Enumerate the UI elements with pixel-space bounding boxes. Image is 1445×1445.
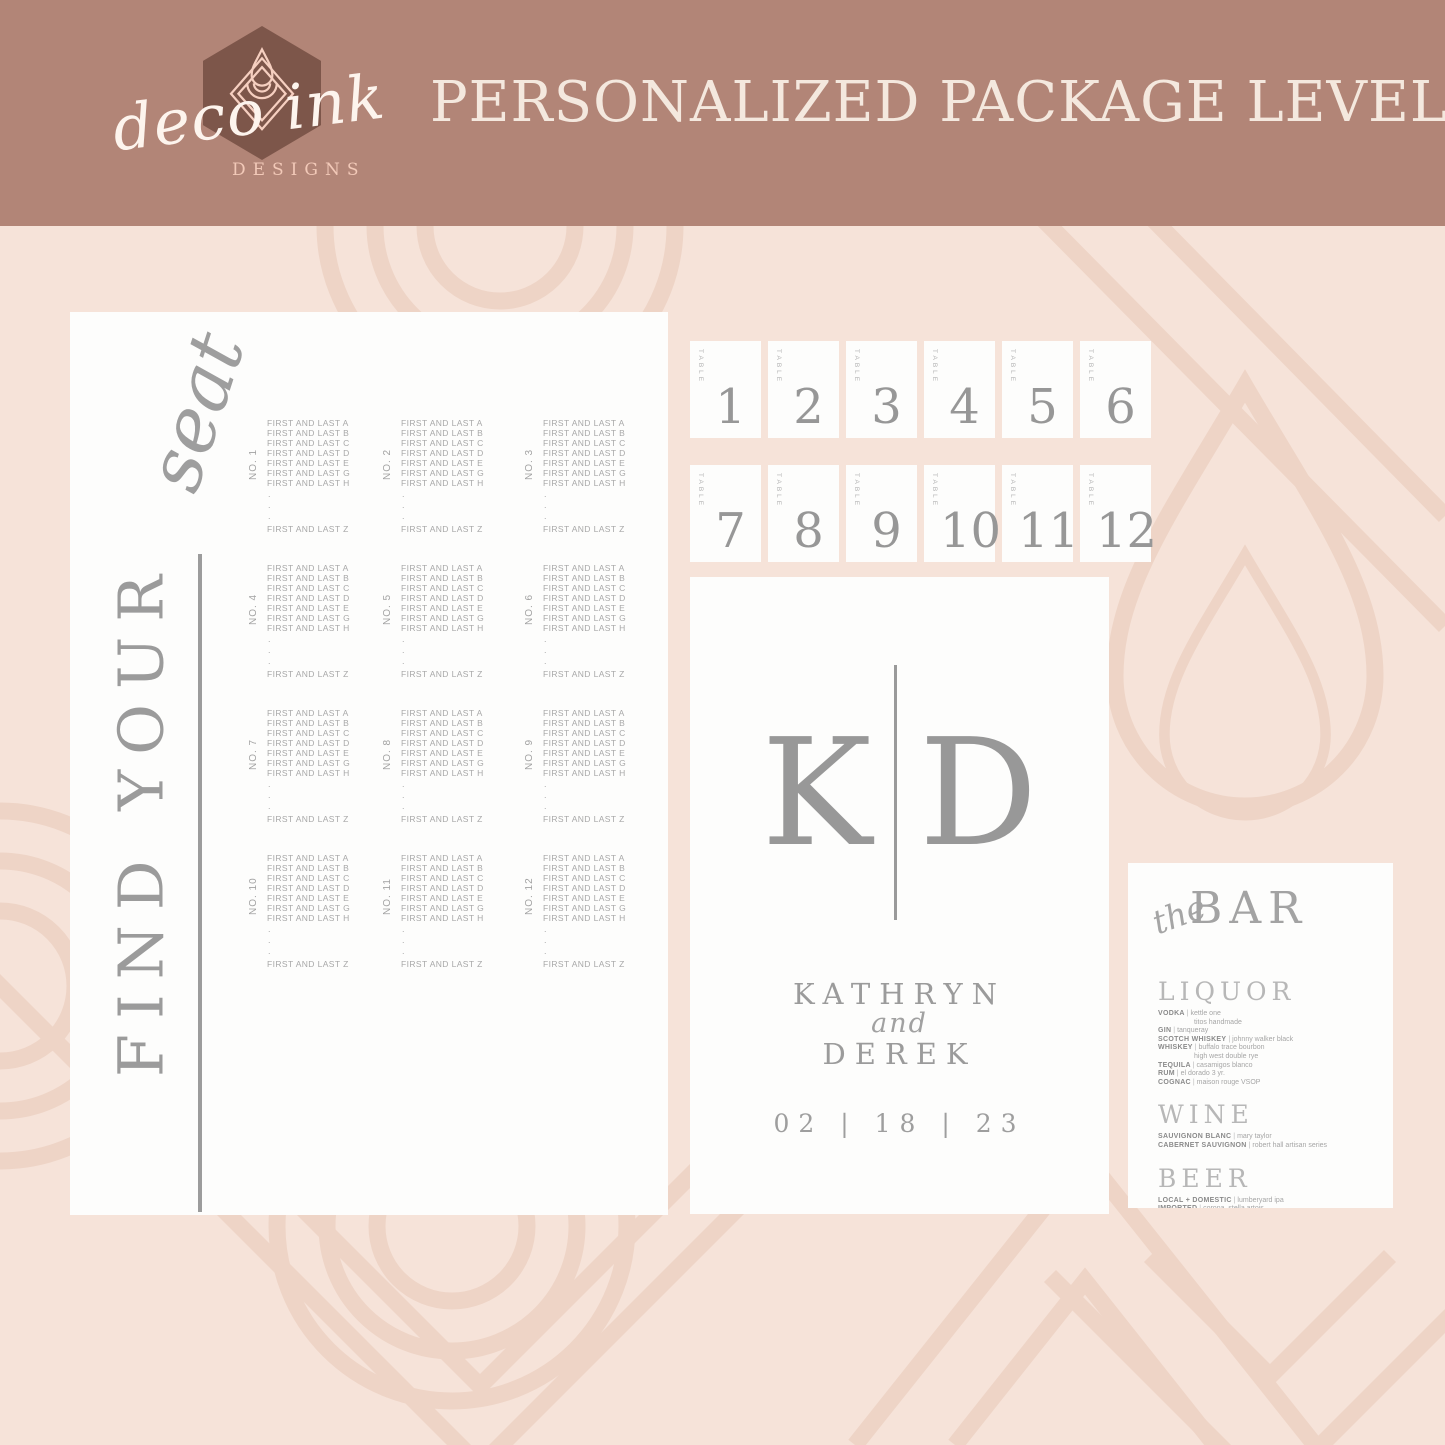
table-card: TABLE7: [690, 465, 761, 562]
page: { "header": { "logo": { "script": "deco …: [0, 0, 1445, 1445]
guest-name: FIRST AND LAST A: [401, 418, 484, 428]
monogram-divider-line: [894, 665, 897, 920]
table-card-label: TABLE: [697, 473, 704, 508]
guest-name: FIRST AND LAST G: [543, 613, 626, 623]
bar-item-label: IMPORTED: [1158, 1205, 1197, 1208]
ellipsis-dot: .: [401, 925, 484, 934]
guest-name: FIRST AND LAST E: [267, 603, 350, 613]
bar-item-value-cont: high west double rye: [1158, 1053, 1379, 1062]
seating-grid: NO. 1FIRST AND LAST AFIRST AND LAST BFIR…: [248, 418, 654, 969]
guest-name: FIRST AND LAST H: [543, 623, 626, 633]
table-group: NO. 6FIRST AND LAST AFIRST AND LAST BFIR…: [524, 563, 654, 679]
and-script-word: and: [690, 1011, 1109, 1037]
table-card: TABLE3: [846, 341, 917, 438]
table-card-number: 6: [1096, 383, 1145, 431]
guest-name: FIRST AND LAST H: [543, 768, 626, 778]
ellipsis-dot: .: [267, 791, 350, 800]
guest-name-last: FIRST AND LAST Z: [543, 524, 626, 534]
table-card-number: 2: [784, 383, 833, 431]
bar-item-label: WHISKEY: [1158, 1044, 1193, 1051]
ellipsis-dot: .: [543, 925, 626, 934]
ellipsis-dot: .: [543, 936, 626, 945]
guest-name: FIRST AND LAST E: [267, 748, 350, 758]
table-card-label: TABLE: [1087, 473, 1094, 508]
guest-name: FIRST AND LAST B: [401, 428, 484, 438]
table-card-number: 3: [862, 383, 911, 431]
table-card-label: TABLE: [1087, 349, 1094, 384]
table-card-number: 5: [1018, 383, 1067, 431]
bar-item-label: COGNAC: [1158, 1079, 1191, 1086]
guest-name: FIRST AND LAST H: [267, 913, 350, 923]
table-card-label: TABLE: [931, 473, 938, 508]
guest-name: FIRST AND LAST G: [543, 758, 626, 768]
guest-name: FIRST AND LAST G: [401, 613, 484, 623]
table-card-label: TABLE: [775, 349, 782, 384]
ellipsis-dot: .: [267, 501, 350, 510]
ellipsis-dot: .: [543, 635, 626, 644]
table-card-label: TABLE: [853, 473, 860, 508]
ellipsis-dot: .: [543, 512, 626, 521]
guest-name: FIRST AND LAST C: [401, 873, 484, 883]
ellipsis-dot: .: [267, 635, 350, 644]
guest-name-last: FIRST AND LAST Z: [543, 669, 626, 679]
guest-name: FIRST AND LAST D: [543, 593, 626, 603]
guest-list: FIRST AND LAST AFIRST AND LAST BFIRST AN…: [543, 418, 626, 534]
ellipsis-dot: .: [543, 501, 626, 510]
guest-name: FIRST AND LAST C: [543, 873, 626, 883]
guest-name-last: FIRST AND LAST Z: [267, 524, 350, 534]
table-card: TABLE11: [1002, 465, 1073, 562]
table-card: TABLE4: [924, 341, 995, 438]
guest-name: FIRST AND LAST G: [543, 903, 626, 913]
guest-name: FIRST AND LAST G: [401, 468, 484, 478]
guest-name: FIRST AND LAST A: [267, 853, 350, 863]
bar-item: VODKA | kettle onetitos handmade: [1158, 1010, 1379, 1027]
guest-name: FIRST AND LAST E: [401, 748, 484, 758]
table-group: NO. 7FIRST AND LAST AFIRST AND LAST BFIR…: [248, 708, 382, 824]
guest-list: FIRST AND LAST AFIRST AND LAST BFIRST AN…: [543, 563, 626, 679]
bar-item: IMPORTED | corona, stella artois: [1158, 1205, 1379, 1208]
table-group: NO. 11FIRST AND LAST AFIRST AND LAST BFI…: [382, 853, 524, 969]
guest-name-last: FIRST AND LAST Z: [401, 524, 484, 534]
guest-name-last: FIRST AND LAST Z: [401, 814, 484, 824]
guest-name-last: FIRST AND LAST Z: [543, 814, 626, 824]
guest-name: FIRST AND LAST C: [401, 438, 484, 448]
ellipsis-dot: .: [543, 791, 626, 800]
guest-name: FIRST AND LAST H: [401, 913, 484, 923]
table-group: NO. 5FIRST AND LAST AFIRST AND LAST BFIR…: [382, 563, 524, 679]
ellipsis-dot: .: [267, 646, 350, 655]
bar-item-label: RUM: [1158, 1070, 1175, 1077]
monogram: K D: [690, 665, 1109, 920]
guest-name: FIRST AND LAST D: [543, 448, 626, 458]
bar-item-label: VODKA: [1158, 1010, 1185, 1017]
table-number-label: NO. 9: [524, 708, 537, 770]
ellipsis-dot: .: [267, 802, 350, 811]
bar-section-title: WINE: [1158, 1100, 1379, 1129]
guest-name: FIRST AND LAST D: [267, 593, 350, 603]
table-number-label: NO. 6: [524, 563, 537, 625]
bar-item-value: johnny walker black: [1232, 1036, 1293, 1043]
guest-name: FIRST AND LAST D: [401, 883, 484, 893]
table-card-number: 11: [1018, 507, 1067, 555]
guest-name: FIRST AND LAST B: [401, 573, 484, 583]
ellipsis-dot: .: [543, 646, 626, 655]
monogram-letter-d: D: [919, 719, 1038, 867]
bar-item-label: GIN: [1158, 1027, 1171, 1034]
guest-name-last: FIRST AND LAST Z: [267, 814, 350, 824]
table-group: NO. 8FIRST AND LAST AFIRST AND LAST BFIR…: [382, 708, 524, 824]
guest-name: FIRST AND LAST C: [401, 728, 484, 738]
guest-list: FIRST AND LAST AFIRST AND LAST BFIRST AN…: [401, 853, 484, 969]
guest-name-last: FIRST AND LAST Z: [543, 959, 626, 969]
guest-name: FIRST AND LAST A: [543, 418, 626, 428]
guest-list: FIRST AND LAST AFIRST AND LAST BFIRST AN…: [401, 708, 484, 824]
guest-name: FIRST AND LAST G: [267, 758, 350, 768]
bar-item: LOCAL + DOMESTIC | lumberyard ipa: [1158, 1197, 1379, 1206]
table-card-label: TABLE: [931, 349, 938, 384]
guest-name: FIRST AND LAST D: [267, 738, 350, 748]
ellipsis-dot: .: [543, 780, 626, 789]
table-card-label: TABLE: [775, 473, 782, 508]
couple-names: KATHRYN and DEREK: [690, 977, 1109, 1071]
guest-name: FIRST AND LAST G: [401, 758, 484, 768]
guest-name: FIRST AND LAST E: [401, 603, 484, 613]
ellipsis-dot: .: [267, 947, 350, 956]
guest-name: FIRST AND LAST C: [543, 438, 626, 448]
bar-item-label: TEQUILA: [1158, 1062, 1191, 1069]
ellipsis-dot: .: [401, 512, 484, 521]
ellipsis-dot: .: [401, 635, 484, 644]
bar-item: COGNAC | maison rouge VSOP: [1158, 1079, 1379, 1088]
guest-name: FIRST AND LAST B: [543, 428, 626, 438]
ellipsis-dot: .: [401, 780, 484, 789]
table-group: NO. 9FIRST AND LAST AFIRST AND LAST BFIR…: [524, 708, 654, 824]
bar-item-value: el dorado 3 yr.: [1181, 1070, 1225, 1077]
guest-name: FIRST AND LAST D: [267, 883, 350, 893]
table-card: TABLE5: [1002, 341, 1073, 438]
ellipsis-dot: .: [267, 936, 350, 945]
page-title: PERSONALIZED PACKAGE LEVEL II: [430, 70, 1431, 135]
guest-name: FIRST AND LAST E: [401, 893, 484, 903]
ellipsis-dot: .: [401, 501, 484, 510]
guest-name: FIRST AND LAST B: [543, 718, 626, 728]
table-group: NO. 1FIRST AND LAST AFIRST AND LAST BFIR…: [248, 418, 382, 534]
guest-name-last: FIRST AND LAST Z: [267, 669, 350, 679]
guest-name: FIRST AND LAST G: [543, 468, 626, 478]
guest-name: FIRST AND LAST A: [543, 853, 626, 863]
table-number-label: NO. 12: [524, 853, 537, 915]
bar-sections: LIQUORVODKA | kettle onetitos handmadeGI…: [1158, 977, 1379, 1208]
table-number-label: NO. 7: [248, 708, 261, 770]
vertical-divider: [198, 554, 202, 1212]
welcome-sign: K D KATHRYN and DEREK 02 | 18 | 23: [690, 577, 1109, 1214]
guest-name: FIRST AND LAST C: [267, 438, 350, 448]
bar-item: CABERNET SAUVIGNON | robert hall artisan…: [1158, 1142, 1379, 1151]
guest-list: FIRST AND LAST AFIRST AND LAST BFIRST AN…: [401, 563, 484, 679]
table-number-label: NO. 3: [524, 418, 537, 480]
guest-name-last: FIRST AND LAST Z: [401, 959, 484, 969]
table-card-number: 8: [784, 507, 833, 555]
guest-list: FIRST AND LAST AFIRST AND LAST BFIRST AN…: [267, 853, 350, 969]
ellipsis-dot: .: [267, 512, 350, 521]
guest-name: FIRST AND LAST G: [267, 613, 350, 623]
guest-list: FIRST AND LAST AFIRST AND LAST BFIRST AN…: [267, 708, 350, 824]
table-number-label: NO. 1: [248, 418, 261, 480]
bar-item-value: kettle one: [1191, 1010, 1221, 1017]
ellipsis-dot: .: [401, 791, 484, 800]
bar-item-label: SCOTCH WHISKEY: [1158, 1036, 1226, 1043]
ellipsis-dot: .: [267, 490, 350, 499]
table-card: TABLE10: [924, 465, 995, 562]
table-card: TABLE2: [768, 341, 839, 438]
guest-name: FIRST AND LAST A: [401, 563, 484, 573]
table-group: NO. 4FIRST AND LAST AFIRST AND LAST BFIR…: [248, 563, 382, 679]
guest-name: FIRST AND LAST C: [543, 583, 626, 593]
guest-name: FIRST AND LAST E: [401, 458, 484, 468]
bar-item-value: lumberyard ipa: [1237, 1197, 1283, 1204]
ellipsis-dot: .: [543, 657, 626, 666]
monogram-letter-k: K: [761, 719, 872, 867]
guest-name: FIRST AND LAST C: [267, 873, 350, 883]
guest-name: FIRST AND LAST B: [401, 863, 484, 873]
guest-name: FIRST AND LAST H: [543, 913, 626, 923]
bar-item: SCOTCH WHISKEY | johnny walker black: [1158, 1036, 1379, 1045]
bar-section-title: BEER: [1158, 1164, 1379, 1193]
table-card-number: 12: [1096, 507, 1145, 555]
guest-name: FIRST AND LAST B: [267, 428, 350, 438]
bar-item: WHISKEY | buffalo trace bourbonhigh west…: [1158, 1044, 1379, 1061]
ellipsis-dot: .: [543, 947, 626, 956]
guest-name: FIRST AND LAST E: [543, 893, 626, 903]
guest-name: FIRST AND LAST G: [401, 903, 484, 913]
find-your-heading: FIND YOUR: [105, 549, 178, 1089]
guest-name: FIRST AND LAST H: [401, 478, 484, 488]
ellipsis-dot: .: [401, 802, 484, 811]
guest-name: FIRST AND LAST A: [267, 563, 350, 573]
bar-item-value: robert hall artisan series: [1252, 1142, 1327, 1149]
ellipsis-dot: .: [543, 802, 626, 811]
table-group: NO. 10FIRST AND LAST AFIRST AND LAST BFI…: [248, 853, 382, 969]
guest-list: FIRST AND LAST AFIRST AND LAST BFIRST AN…: [543, 853, 626, 969]
ellipsis-dot: .: [401, 947, 484, 956]
seating-chart-poster: seat FIND YOUR NO. 1FIRST AND LAST AFIRS…: [70, 312, 668, 1215]
ellipsis-dot: .: [401, 490, 484, 499]
table-card: TABLE1: [690, 341, 761, 438]
bar-menu-header: the BAR: [1158, 879, 1379, 951]
bar-item-value: maison rouge VSOP: [1197, 1079, 1261, 1086]
guest-list: FIRST AND LAST AFIRST AND LAST BFIRST AN…: [267, 563, 350, 679]
ellipsis-dot: .: [267, 657, 350, 666]
bar-item-value: tanqueray: [1177, 1027, 1208, 1034]
guest-name: FIRST AND LAST C: [543, 728, 626, 738]
guest-name: FIRST AND LAST A: [267, 418, 350, 428]
guest-list: FIRST AND LAST AFIRST AND LAST BFIRST AN…: [267, 418, 350, 534]
guest-name: FIRST AND LAST H: [401, 623, 484, 633]
table-number-label: NO. 4: [248, 563, 261, 625]
guest-name: FIRST AND LAST G: [267, 468, 350, 478]
guest-name: FIRST AND LAST A: [267, 708, 350, 718]
guest-name: FIRST AND LAST D: [401, 738, 484, 748]
table-card-number: 10: [940, 507, 989, 555]
guest-name: FIRST AND LAST D: [267, 448, 350, 458]
guest-name: FIRST AND LAST E: [267, 893, 350, 903]
bar-item-label: SAUVIGNON BLANC: [1158, 1133, 1231, 1140]
guest-name: FIRST AND LAST H: [401, 768, 484, 778]
bar-item-label: CABERNET SAUVIGNON: [1158, 1142, 1247, 1149]
guest-name: FIRST AND LAST B: [543, 573, 626, 583]
ellipsis-dot: .: [401, 646, 484, 655]
wedding-date: 02 | 18 | 23: [690, 1109, 1109, 1138]
guest-list: FIRST AND LAST AFIRST AND LAST BFIRST AN…: [543, 708, 626, 824]
guest-name: FIRST AND LAST H: [267, 623, 350, 633]
guest-name: FIRST AND LAST B: [401, 718, 484, 728]
table-card-number: 7: [706, 507, 755, 555]
bar-item-value: casamigos blanco: [1197, 1062, 1253, 1069]
guest-name: FIRST AND LAST B: [543, 863, 626, 873]
table-number-label: NO. 5: [382, 563, 395, 625]
ellipsis-dot: .: [401, 657, 484, 666]
guest-name: FIRST AND LAST E: [543, 748, 626, 758]
bar-menu: the BAR LIQUORVODKA | kettle onetitos ha…: [1128, 863, 1393, 1208]
guest-name: FIRST AND LAST E: [267, 458, 350, 468]
bar-title: BAR: [1190, 883, 1308, 934]
table-card: TABLE9: [846, 465, 917, 562]
guest-name: FIRST AND LAST G: [267, 903, 350, 913]
table-number-label: NO. 11: [382, 853, 395, 915]
ellipsis-dot: .: [401, 936, 484, 945]
bar-item: TEQUILA | casamigos blanco: [1158, 1062, 1379, 1071]
bar-section-title: LIQUOR: [1158, 977, 1379, 1006]
guest-name: FIRST AND LAST A: [543, 563, 626, 573]
guest-list: FIRST AND LAST AFIRST AND LAST BFIRST AN…: [401, 418, 484, 534]
guest-name: FIRST AND LAST E: [543, 458, 626, 468]
bar-item-label: LOCAL + DOMESTIC: [1158, 1197, 1232, 1204]
guest-name: FIRST AND LAST D: [401, 448, 484, 458]
table-card-label: TABLE: [853, 349, 860, 384]
guest-name: FIRST AND LAST A: [401, 853, 484, 863]
table-number-label: NO. 2: [382, 418, 395, 480]
groom-name: DEREK: [690, 1037, 1109, 1071]
ellipsis-dot: .: [543, 490, 626, 499]
guest-name: FIRST AND LAST H: [543, 478, 626, 488]
table-card-number: 1: [706, 383, 755, 431]
table-number-label: NO. 10: [248, 853, 261, 915]
table-card-label: TABLE: [1009, 473, 1016, 508]
guest-name: FIRST AND LAST D: [543, 738, 626, 748]
table-card-number: 9: [862, 507, 911, 555]
guest-name: FIRST AND LAST B: [267, 718, 350, 728]
guest-name: FIRST AND LAST D: [543, 883, 626, 893]
guest-name-last: FIRST AND LAST Z: [401, 669, 484, 679]
table-group: NO. 2FIRST AND LAST AFIRST AND LAST BFIR…: [382, 418, 524, 534]
guest-name: FIRST AND LAST A: [543, 708, 626, 718]
bar-item: SAUVIGNON BLANC | mary taylor: [1158, 1133, 1379, 1142]
ellipsis-dot: .: [267, 780, 350, 789]
guest-name: FIRST AND LAST D: [401, 593, 484, 603]
guest-name: FIRST AND LAST H: [267, 478, 350, 488]
table-number-label: NO. 8: [382, 708, 395, 770]
table-group: NO. 12FIRST AND LAST AFIRST AND LAST BFI…: [524, 853, 654, 969]
table-card-number: 4: [940, 383, 989, 431]
ellipsis-dot: .: [267, 925, 350, 934]
bar-item: RUM | el dorado 3 yr.: [1158, 1070, 1379, 1079]
bar-item-value: buffalo trace bourbon: [1199, 1044, 1265, 1051]
guest-name: FIRST AND LAST B: [267, 573, 350, 583]
table-cards: TABLE1TABLE2TABLE3TABLE4TABLE5TABLE6TABL…: [690, 341, 1160, 562]
seat-script-word: seat: [126, 317, 263, 506]
header-banner: deco ink DESIGNS PERSONALIZED PACKAGE LE…: [0, 0, 1445, 226]
table-group: NO. 3FIRST AND LAST AFIRST AND LAST BFIR…: [524, 418, 654, 534]
table-card: TABLE6: [1080, 341, 1151, 438]
table-card-label: TABLE: [1009, 349, 1016, 384]
bar-item: GIN | tanqueray: [1158, 1027, 1379, 1036]
guest-name-last: FIRST AND LAST Z: [267, 959, 350, 969]
guest-name: FIRST AND LAST C: [267, 728, 350, 738]
guest-name: FIRST AND LAST A: [401, 708, 484, 718]
table-card-label: TABLE: [697, 349, 704, 384]
guest-name: FIRST AND LAST C: [267, 583, 350, 593]
logo-designs-text: DESIGNS: [232, 160, 366, 180]
guest-name: FIRST AND LAST B: [267, 863, 350, 873]
bar-item-value-cont: titos handmade: [1158, 1019, 1379, 1028]
guest-name: FIRST AND LAST H: [267, 768, 350, 778]
guest-name: FIRST AND LAST C: [401, 583, 484, 593]
table-card: TABLE8: [768, 465, 839, 562]
table-card: TABLE12: [1080, 465, 1151, 562]
bride-name: KATHRYN: [690, 977, 1109, 1011]
bar-item-value: mary taylor: [1237, 1133, 1272, 1140]
guest-name: FIRST AND LAST E: [543, 603, 626, 613]
bar-item-value: corona, stella artois: [1203, 1205, 1264, 1208]
